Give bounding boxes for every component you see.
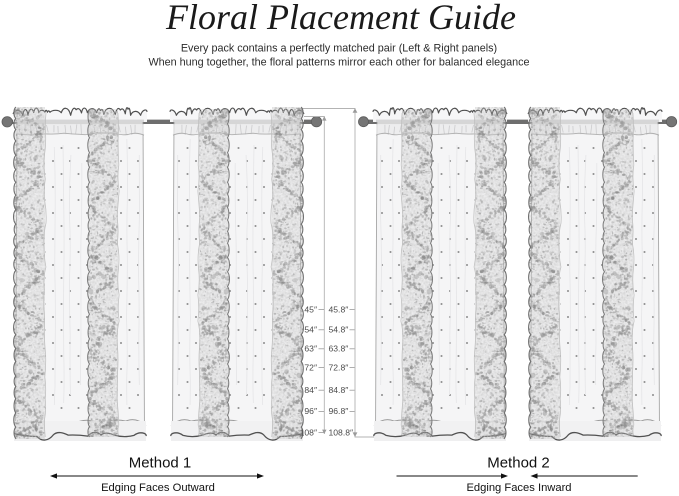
svg-text:108″: 108″ <box>300 427 317 437</box>
svg-text:72.8″: 72.8″ <box>329 362 349 372</box>
svg-text:45″: 45″ <box>304 304 317 314</box>
svg-text:When hung together, the floral: When hung together, the floral patterns … <box>148 57 529 69</box>
svg-text:84″: 84″ <box>304 385 317 395</box>
svg-text:63″: 63″ <box>304 344 317 354</box>
svg-text:72″: 72″ <box>304 362 317 372</box>
svg-text:Edging Faces Inward: Edging Faces Inward <box>466 482 571 494</box>
svg-text:Method 2: Method 2 <box>487 455 550 472</box>
svg-text:96.8″: 96.8″ <box>329 406 349 416</box>
svg-text:54″: 54″ <box>304 325 317 335</box>
svg-text:45.8″: 45.8″ <box>329 304 349 314</box>
svg-text:108.8″: 108.8″ <box>329 427 354 437</box>
svg-text:Edging Faces Outward: Edging Faces Outward <box>101 482 215 494</box>
svg-text:Method 1: Method 1 <box>129 455 192 472</box>
svg-text:96″: 96″ <box>304 406 317 416</box>
svg-text:63.8″: 63.8″ <box>329 344 349 354</box>
svg-text:84.8″: 84.8″ <box>329 385 349 395</box>
svg-text:Every pack contains a perfectl: Every pack contains a perfectly matched … <box>181 43 497 55</box>
svg-text:Floral Placement Guide: Floral Placement Guide <box>165 0 516 37</box>
svg-text:54.8″: 54.8″ <box>329 325 349 335</box>
